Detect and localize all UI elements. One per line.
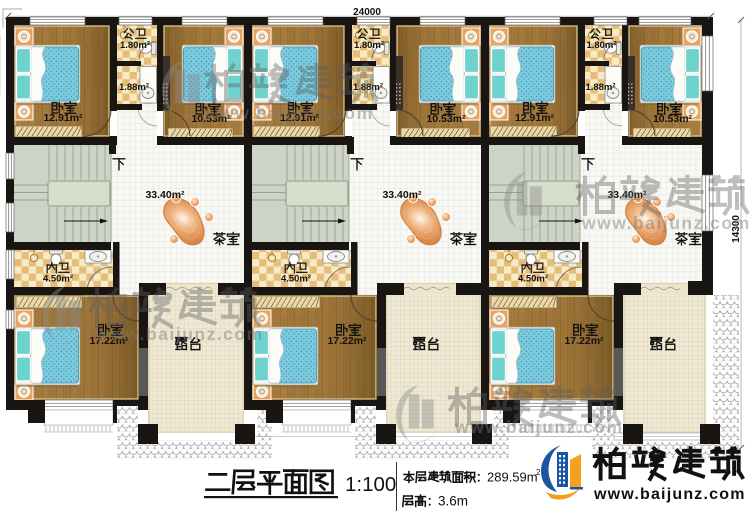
svg-text:4.50m²: 4.50m² xyxy=(518,274,548,285)
svg-text:：: ： xyxy=(476,472,487,484)
svg-text:：: ： xyxy=(427,496,438,508)
svg-text:2: 2 xyxy=(536,468,541,477)
svg-text:17.22m²: 17.22m² xyxy=(564,335,604,347)
svg-text:17.22m²: 17.22m² xyxy=(327,335,367,347)
svg-text:1:100: 1:100 xyxy=(345,473,396,496)
svg-text:33.40m²: 33.40m² xyxy=(145,189,185,201)
svg-text:1.88m²: 1.88m² xyxy=(585,82,615,93)
svg-text:1.80m²: 1.80m² xyxy=(586,40,616,51)
svg-text:4.50m²: 4.50m² xyxy=(281,274,311,285)
svg-text:12.91m²: 12.91m² xyxy=(43,112,83,124)
svg-text:3.6m: 3.6m xyxy=(438,494,468,509)
svg-text:10.53m²: 10.53m² xyxy=(426,113,466,125)
svg-text:12.91m²: 12.91m² xyxy=(515,112,555,124)
svg-text:www.baijunz.com: www.baijunz.com xyxy=(204,103,374,123)
svg-text:10.53m²: 10.53m² xyxy=(653,113,693,125)
svg-text:24000: 24000 xyxy=(353,7,381,18)
svg-text:33.40m²: 33.40m² xyxy=(382,189,422,201)
svg-text:1.80m²: 1.80m² xyxy=(120,40,150,51)
svg-text:www.baijunz.com: www.baijunz.com xyxy=(593,486,746,503)
svg-text:www.baijunz.com: www.baijunz.com xyxy=(454,417,624,437)
svg-text:www.baijunz.com: www.baijunz.com xyxy=(581,213,750,233)
svg-text:4.50m²: 4.50m² xyxy=(43,274,73,285)
svg-text:www.baijunz.com: www.baijunz.com xyxy=(94,324,264,344)
svg-text:1.88m²: 1.88m² xyxy=(119,82,149,93)
svg-text:289.59m: 289.59m xyxy=(487,470,538,485)
svg-text:1.80m²: 1.80m² xyxy=(354,40,384,51)
